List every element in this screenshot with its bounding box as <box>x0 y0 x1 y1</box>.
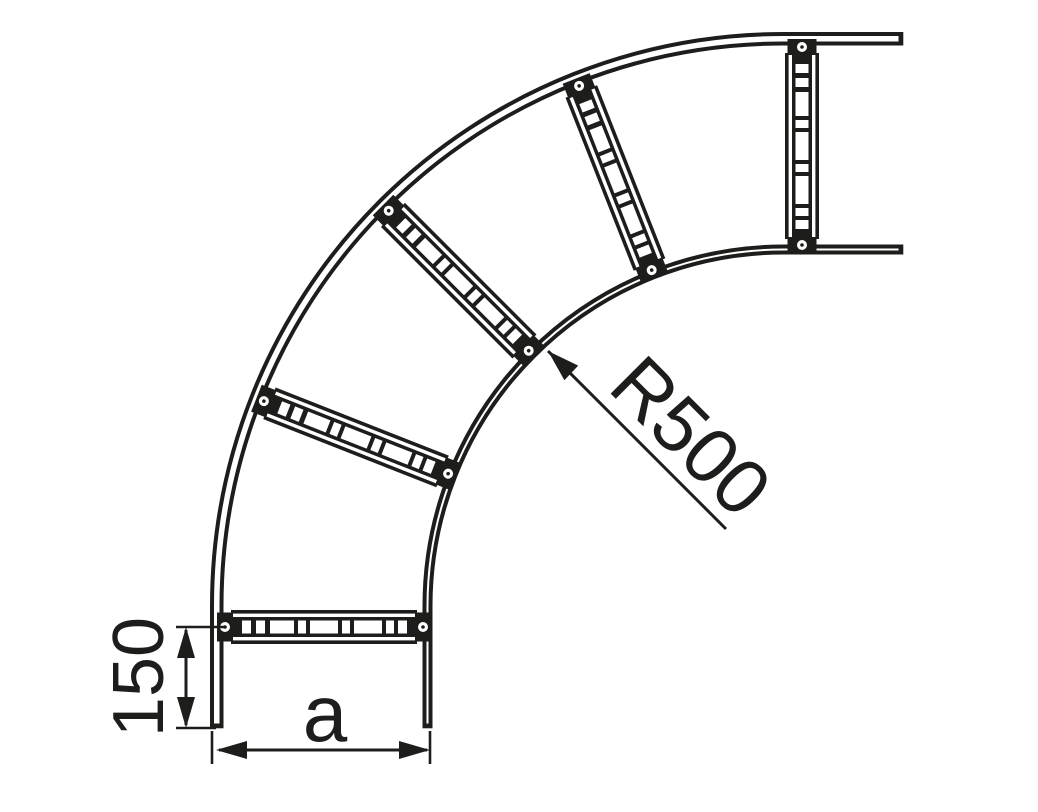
rungs <box>217 39 819 644</box>
rung-22deg <box>250 382 462 492</box>
outer-rail-top-end-cap <box>899 32 904 46</box>
ladder-bend-drawing: R500 150 a <box>0 0 1038 812</box>
dim150-arrow-up <box>177 627 195 658</box>
dimension-a: a <box>212 669 430 764</box>
dim150-arrow-down <box>177 697 195 728</box>
dim150-label: 150 <box>99 617 179 737</box>
dima-arrow-right <box>399 741 430 759</box>
rung-top-end <box>785 39 819 253</box>
dima-arrow-left <box>216 741 247 759</box>
rung-bottom-end <box>217 610 431 644</box>
dima-label: a <box>303 669 348 758</box>
radius-dimension: R500 <box>548 339 788 533</box>
technical-drawing-svg: R500 150 a <box>0 0 1038 812</box>
rung-68deg <box>560 72 670 284</box>
radius-label: R500 <box>594 339 788 533</box>
rung-45deg <box>371 193 546 368</box>
inner-rail-top-end-cap <box>899 245 904 255</box>
inner-rail-bottom-end-cap <box>423 724 433 729</box>
dimension-150: 150 <box>99 617 224 737</box>
